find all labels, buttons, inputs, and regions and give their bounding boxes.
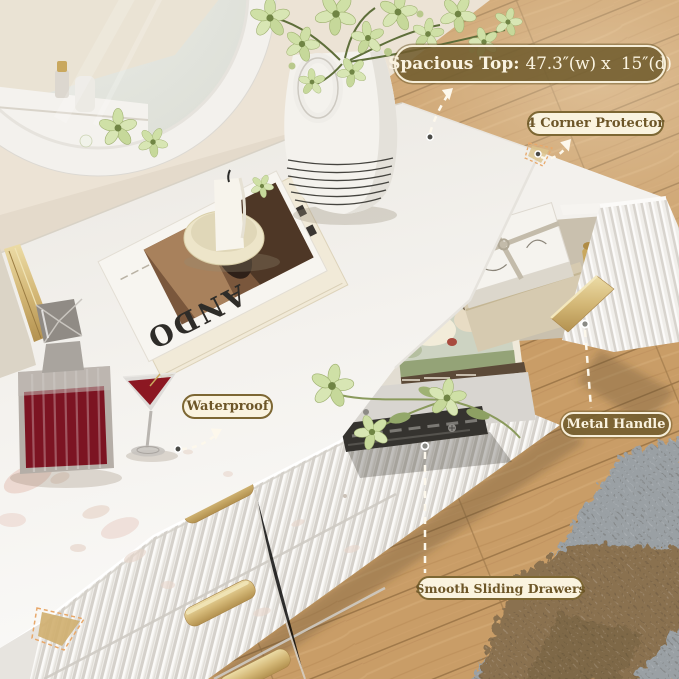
candle — [214, 178, 244, 251]
callout-metal-handle: Metal Handle — [561, 412, 671, 437]
gold-cap-bottle-reflection — [57, 61, 67, 72]
metal-handle-label: Metal Handle — [566, 417, 665, 432]
spacious-top-dimensions: 47.3″(w) x 15″(d) — [526, 54, 672, 74]
spacious-top-title: Spacious Top: — [388, 54, 519, 74]
product-image: ANDO — [0, 0, 679, 679]
corner-protector-label: 4 Corner Protector — [527, 116, 665, 131]
waterproof-label: Waterproof — [187, 399, 269, 414]
callout-waterproof: Waterproof — [182, 394, 273, 419]
callout-spacious-top: Spacious Top: 47.3″(w) x 15″(d) — [394, 45, 666, 83]
callout-sliding-drawers: Smooth Sliding Drawers — [417, 576, 584, 600]
sliding-drawers-label: Smooth Sliding Drawers — [415, 581, 585, 596]
callout-corner-protector: 4 Corner Protector — [527, 111, 664, 136]
